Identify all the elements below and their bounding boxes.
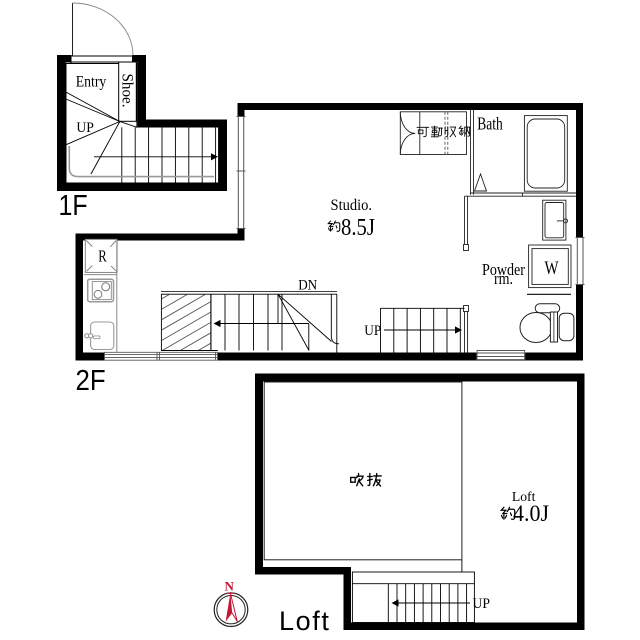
svg-text:1F: 1F — [59, 189, 88, 221]
svg-text:W: W — [545, 259, 559, 279]
svg-text:DN: DN — [298, 278, 317, 294]
svg-text:rm.: rm. — [494, 269, 513, 288]
svg-text:Entry: Entry — [76, 74, 107, 91]
svg-text:Loft: Loft — [279, 606, 330, 636]
svg-text:4.0J: 4.0J — [513, 501, 549, 526]
svg-text:UP: UP — [76, 120, 94, 136]
svg-text:UP: UP — [473, 596, 491, 612]
svg-text:2F: 2F — [76, 364, 106, 397]
svg-text:N: N — [225, 579, 235, 594]
svg-text:R: R — [98, 247, 107, 266]
svg-text:Shoe.: Shoe. — [119, 74, 136, 108]
svg-text:UP: UP — [364, 323, 381, 339]
svg-text:8.5J: 8.5J — [341, 215, 375, 241]
svg-text:Studio.: Studio. — [331, 197, 373, 214]
svg-text:Bath: Bath — [477, 114, 503, 134]
